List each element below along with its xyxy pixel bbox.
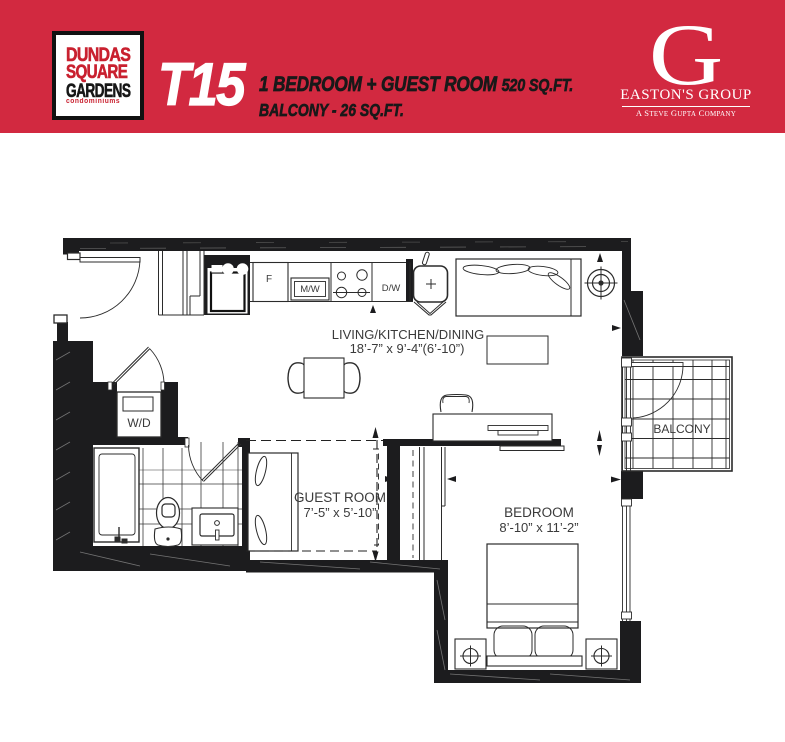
svg-text:W/D: W/D bbox=[127, 416, 151, 430]
svg-text:7’-5” x 5’-10”: 7’-5” x 5’-10” bbox=[304, 505, 377, 520]
svg-text:M/W: M/W bbox=[300, 284, 320, 295]
svg-text:8’-10” x 11’-2”: 8’-10” x 11’-2” bbox=[499, 520, 578, 535]
svg-text:F: F bbox=[266, 274, 272, 285]
svg-text:LIVING/KITCHEN/DINING: LIVING/KITCHEN/DINING bbox=[332, 327, 484, 342]
svg-text:18’-7” x 9’-4”(6’-10”): 18’-7” x 9’-4”(6’-10”) bbox=[350, 341, 465, 356]
svg-text:BEDROOM: BEDROOM bbox=[504, 505, 574, 520]
svg-text:D/W: D/W bbox=[382, 283, 401, 294]
svg-text:GUEST ROOM: GUEST ROOM bbox=[294, 490, 386, 505]
svg-text:BALCONY: BALCONY bbox=[653, 422, 710, 436]
